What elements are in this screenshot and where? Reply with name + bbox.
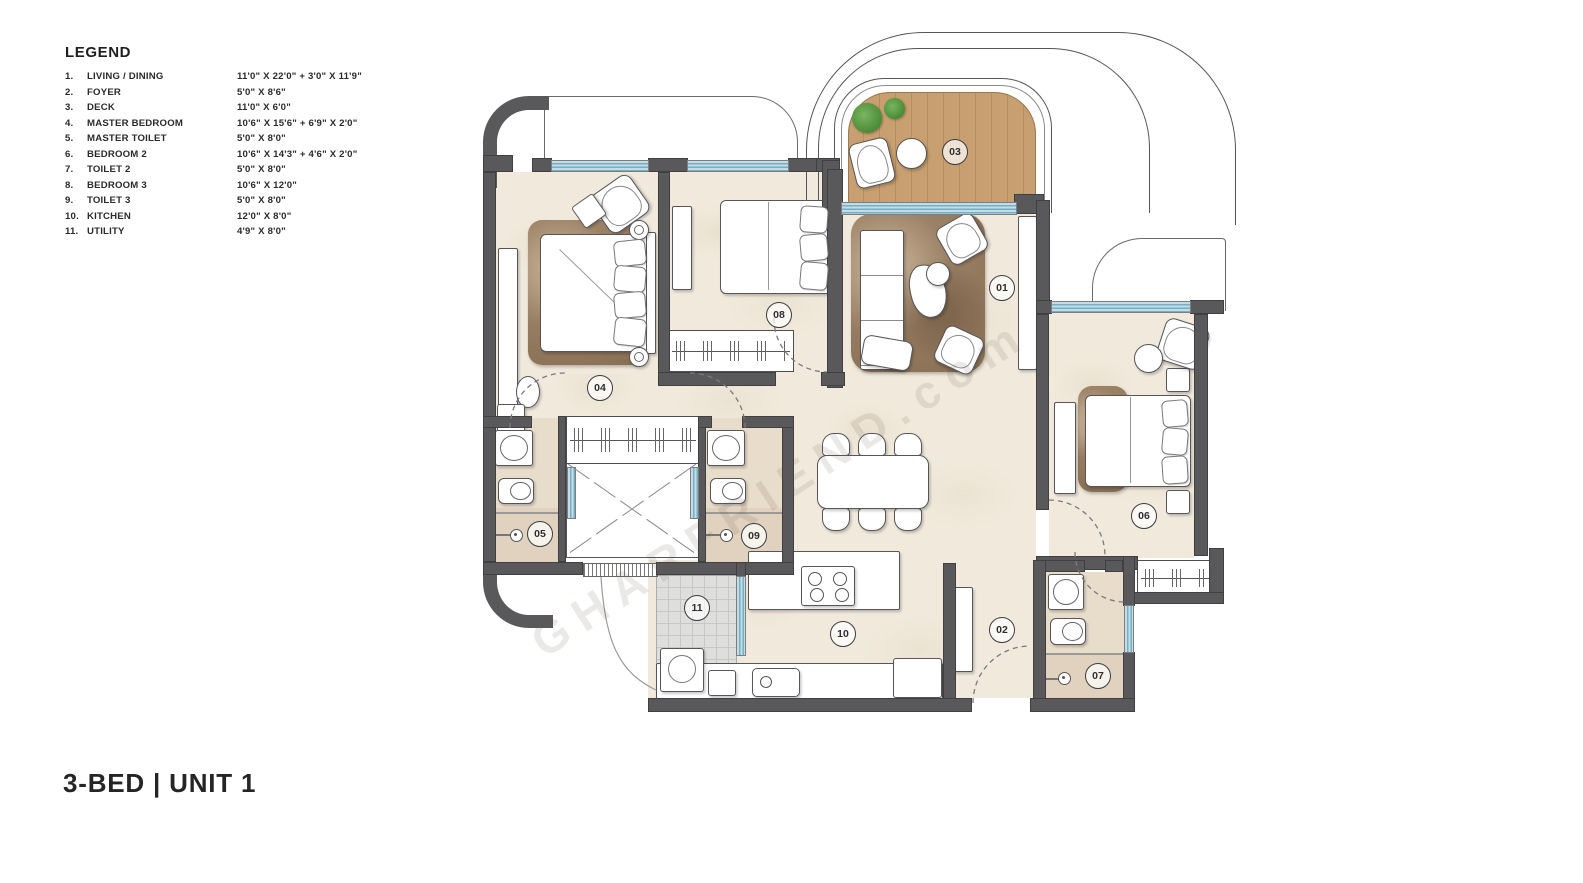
shaft-window [568, 468, 575, 518]
wall [782, 416, 794, 575]
chajja-left [544, 96, 798, 163]
pillow [613, 316, 648, 347]
wall-sconce [629, 220, 649, 240]
room-badge-10: 10 [830, 621, 856, 647]
wall [1036, 300, 1052, 314]
bed-divider-line [768, 202, 769, 290]
wall [1036, 200, 1050, 314]
bedside-table [1166, 368, 1190, 392]
wall [1190, 300, 1224, 314]
burner [833, 572, 847, 586]
tv-console [1018, 216, 1037, 370]
wall [483, 172, 496, 562]
master-headboard [646, 232, 656, 354]
wall [736, 562, 746, 577]
shaft-window [691, 468, 698, 518]
wall [698, 416, 712, 428]
floorplan-page: LEGEND 1.LIVING / DINING11'0" X 22'0" + … [0, 0, 1583, 883]
wall [648, 698, 972, 712]
shower-partition [706, 512, 782, 514]
pillow [613, 265, 647, 294]
wall [1129, 592, 1224, 604]
coffee-table-small [926, 262, 950, 286]
wall [658, 172, 670, 374]
faucet [760, 676, 772, 688]
bed-divider-line [1130, 397, 1131, 483]
pillow [1161, 427, 1189, 456]
room-badge-02: 02 [989, 617, 1015, 643]
toilet-wc [710, 478, 746, 504]
pillow [799, 261, 829, 291]
pillow [1161, 455, 1189, 485]
wall [658, 372, 776, 386]
room-badge-11: 11 [684, 595, 710, 621]
shower-partition [1046, 653, 1123, 655]
wall-corner-bottomleft [483, 573, 553, 628]
toilet7-window [1125, 606, 1133, 652]
washing-machine-drum [668, 655, 696, 683]
burner [835, 588, 849, 602]
pillow [799, 233, 829, 262]
shaft-grille [583, 563, 658, 577]
washbasin [495, 430, 533, 466]
pillow [613, 291, 647, 320]
burner [810, 588, 824, 602]
shower-head-icon [510, 529, 523, 542]
room-badge-01: 01 [989, 275, 1015, 301]
service-shaft [566, 462, 700, 558]
deck-slider-window [842, 203, 1016, 214]
shower-partition [496, 512, 558, 514]
desk [1054, 402, 1076, 494]
room-badge-06: 06 [1131, 503, 1157, 529]
window [552, 161, 648, 171]
shower-head-icon [1058, 672, 1071, 685]
wall [483, 416, 532, 428]
deck-table [896, 138, 927, 169]
pillow [613, 238, 648, 267]
bedroom3-side-unit [672, 206, 692, 290]
bedroom3-wardrobe [668, 330, 794, 372]
master-wardrobe [566, 416, 700, 464]
wall [742, 416, 794, 428]
room-badge-07: 07 [1085, 663, 1111, 689]
wall [648, 158, 688, 172]
wall [943, 563, 956, 700]
room-badge-04: 04 [587, 375, 613, 401]
wall [698, 416, 706, 562]
wall [532, 158, 552, 172]
room-badge-08: 08 [766, 302, 792, 328]
wall [483, 562, 583, 575]
pillow [1161, 399, 1189, 428]
burner [808, 572, 822, 586]
utility-sink [708, 670, 736, 696]
side-table [1134, 344, 1163, 373]
fridge [893, 658, 942, 698]
shower-head-icon [720, 529, 733, 542]
toilet-wc [498, 478, 534, 504]
wall [1123, 556, 1135, 606]
dining-chair [894, 433, 922, 456]
window [688, 161, 788, 171]
wall [656, 562, 794, 575]
washbasin [707, 430, 745, 466]
floor-plan: 0102030405060708091011 GHARFRIEND.com [0, 0, 1583, 883]
dining-chair [894, 508, 922, 531]
toilet-wc [1050, 618, 1086, 645]
dining-chair [822, 433, 850, 456]
wall [1030, 698, 1135, 712]
wall [821, 372, 845, 386]
wall [1105, 560, 1123, 572]
room-badge-05: 05 [527, 521, 553, 547]
wall [483, 155, 513, 172]
dining-chair [858, 433, 886, 456]
wall [558, 416, 566, 562]
window [1052, 302, 1190, 312]
dining-chair [822, 508, 850, 531]
plant-icon [884, 98, 905, 119]
pillow [799, 205, 829, 234]
master-console [498, 248, 518, 418]
bedroom2-wardrobe [1137, 560, 1213, 596]
wall [1033, 560, 1046, 710]
dining-chair [858, 508, 886, 531]
page-title: 3-BED | UNIT 1 [63, 768, 256, 799]
utility-window [737, 577, 745, 655]
plant-icon [852, 103, 882, 133]
washbasin [1048, 574, 1084, 610]
wall [1194, 314, 1208, 556]
wall [827, 169, 843, 388]
wall [1036, 314, 1049, 510]
bedside-table [1166, 490, 1190, 514]
foyer-cabinet [953, 587, 973, 672]
dining-table [817, 455, 929, 509]
room-badge-09: 09 [741, 523, 767, 549]
room-badge-03: 03 [942, 139, 968, 165]
wall-sconce [629, 347, 649, 367]
